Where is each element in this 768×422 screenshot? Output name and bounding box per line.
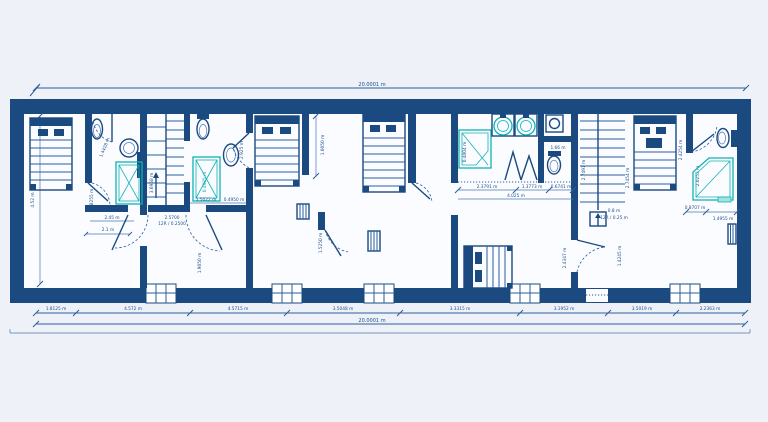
wall-bath3-left-top — [451, 113, 458, 183]
wall-stub-bedroom2 — [302, 113, 309, 175]
wall-bedroom5-left — [451, 215, 458, 288]
dim-stair2-risers: 12R / 0.25 m — [600, 215, 628, 221]
dim-bath1-clear: 2.1 m — [102, 227, 114, 233]
wall-hall-2 — [148, 205, 186, 212]
wall-wc3-shelf — [538, 136, 573, 142]
dim-seg-6: 3.1952 m — [554, 306, 575, 312]
toilet-3-tank — [548, 151, 561, 156]
wall-bedroom4-bath4 — [686, 113, 693, 153]
toilet-4-tank — [731, 130, 737, 147]
dim-bath4-seg2: 1.4955 m — [713, 216, 734, 222]
dim-door-right: 1.4245 m — [617, 246, 623, 267]
dim-tub2-offset: 0.4950 m — [224, 197, 245, 203]
dim-tub2-length: 1.5022 m — [196, 197, 217, 203]
wall-stairs-bath2-top — [184, 113, 190, 141]
dim-hall-door-right: 1.5250 m — [318, 233, 324, 254]
dimension-bottom: 1.8125 m 4.572 m 4.5715 m 3.5048 m 3.331… — [10, 306, 750, 333]
dim-stair1-run: 3.6958 m — [149, 173, 155, 194]
dim-stair2-right: 2.7454 m — [625, 168, 631, 189]
dim-stair1-risers: 12R / 0.2500 — [158, 221, 186, 227]
wall-right — [737, 99, 751, 303]
dim-shower3-width: 0.4004 m — [462, 142, 468, 163]
wall-bath2-bedroom2-bottom — [246, 168, 253, 288]
dim-wc3-depth: 1.66 m — [550, 145, 565, 151]
window-1 — [146, 284, 176, 303]
dim-bath3-seg2: 1.3773 m — [522, 184, 543, 190]
wall-opening-dotted — [586, 289, 608, 302]
dim-bottom-total: 20.0001 m — [358, 318, 385, 324]
dim-seg-1: 1.8125 m — [46, 306, 67, 312]
dim-seg-5: 3.3315 m — [450, 306, 471, 312]
dim-bed5-side: 2.4347 m — [562, 248, 568, 269]
wall-wc3 — [538, 113, 544, 183]
toilet-2-tank — [197, 114, 209, 119]
dim-stair2-left: 2.7491 m — [581, 160, 587, 181]
wall-top — [10, 99, 751, 114]
dim-seg-3: 4.5715 m — [228, 306, 249, 312]
wall-stub-hall — [318, 212, 325, 230]
dim-stair2-area: 0.8 m — [608, 208, 620, 214]
window-4 — [510, 284, 540, 303]
wall-bedroom1-bath1 — [85, 113, 92, 183]
dim-left-height: 4.52 m — [30, 192, 36, 207]
wall-hall-3 — [206, 205, 253, 212]
dim-stair1-tread: 2.5700 — [164, 215, 179, 221]
floor-plan-drawing: 20.0001 m 4.52 m 1.8125 m 4.572 m 4.5715… — [0, 0, 768, 422]
dim-bath4-seg1: 0.8707 m — [685, 205, 706, 211]
dim-bath3-seg3: 0.6741 m — [551, 184, 572, 190]
dim-tub2-width: 0.4985 m — [202, 172, 208, 193]
dim-bath1-width: 2.45 m — [104, 215, 119, 221]
dim-seg-7: 3.5019 m — [632, 306, 653, 312]
dimension-top: 20.0001 m — [30, 82, 749, 96]
wall-left — [10, 99, 24, 303]
wall-stairs2-left — [571, 113, 578, 240]
dim-hall-door-left: 1.1750 m — [142, 258, 148, 279]
dim-bath3-total: 4.025 m — [507, 193, 525, 199]
dim-seg-2: 4.572 m — [124, 306, 142, 312]
dim-niche-width: 1.0050 m — [320, 135, 326, 156]
dim-seg-4: 3.5048 m — [333, 306, 354, 312]
window-2 — [272, 284, 302, 303]
window-5 — [670, 284, 700, 303]
dim-seg-8: 2.2363 m — [700, 306, 721, 312]
floor-plan-canvas: 20.0001 m 4.52 m 1.8125 m 4.572 m 4.5715… — [0, 0, 768, 422]
dim-bed1-door: 0.8255 m — [89, 189, 95, 210]
dim-bath2-height: 2.925 m — [239, 141, 245, 159]
dim-bed4-side: 2.4254 m — [678, 140, 684, 161]
dim-hall-door-mid: 1.9050 m — [197, 253, 203, 274]
window-3 — [364, 284, 394, 303]
wall-bedroom3-bath3 — [408, 113, 416, 183]
wall-bath2-bedroom2-top — [246, 113, 253, 133]
dim-bath3-seg1: 2.3791 m — [477, 184, 498, 190]
dim-top-total: 20.0001 m — [358, 82, 385, 88]
